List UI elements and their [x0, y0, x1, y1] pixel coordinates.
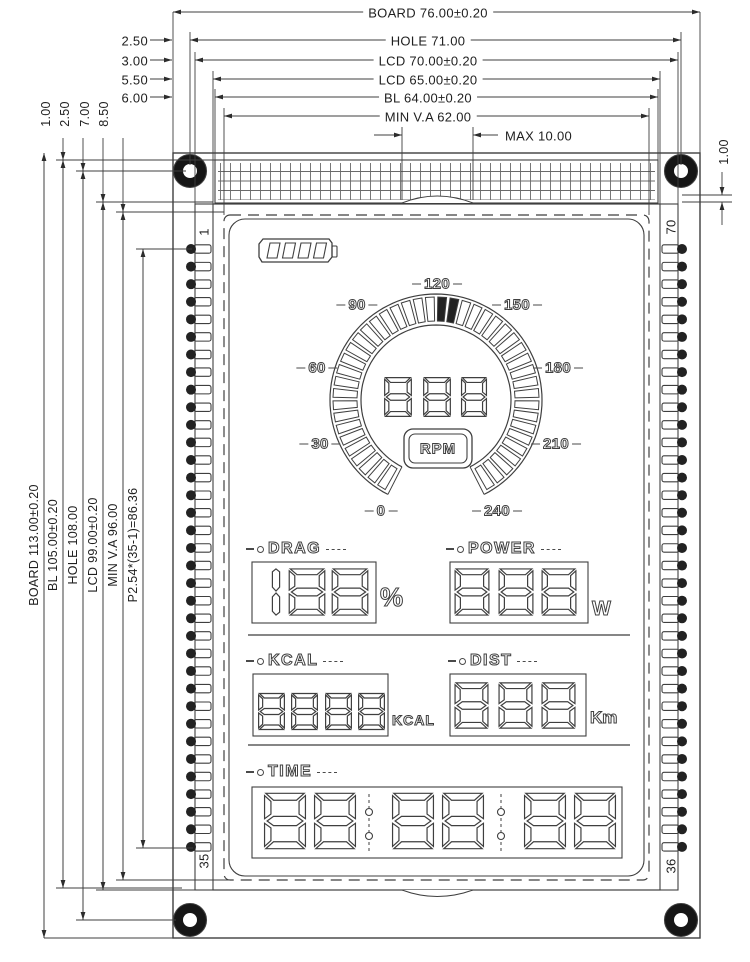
- kcal-section-label: KCAL: [246, 652, 343, 670]
- leader-dot-icon: [257, 658, 264, 665]
- gauge-digits: [385, 378, 487, 417]
- time-section-label: TIME: [246, 763, 337, 781]
- offset-top-hole: 2.50: [59, 101, 72, 127]
- gauge-label-180: 180: [530, 361, 586, 376]
- drag-section-label: DRAG: [246, 540, 346, 558]
- leader-dot-icon: [257, 769, 264, 776]
- gauge-label-0: 0: [362, 504, 401, 519]
- dim-top-backlight: BL 64.00±0.20: [379, 92, 477, 105]
- gauge-label-60-text: 60: [308, 361, 325, 376]
- dim-top-lcd-inner: LCD 65.00±0.20: [374, 74, 483, 87]
- power-unit-watt: W: [592, 598, 611, 621]
- pin-number-1: 1: [198, 228, 211, 236]
- leader-tail: [317, 772, 337, 773]
- gauge-label-120-text: 120: [424, 277, 450, 292]
- leader-dot-icon: [459, 658, 466, 665]
- leader-line: [246, 548, 254, 550]
- gauge-label-120: 120: [409, 277, 465, 292]
- kcal-digits: [259, 694, 385, 730]
- gauge-label-90: 90: [333, 298, 380, 313]
- leader-dot-icon: [257, 546, 264, 553]
- leader-dot-icon: [457, 546, 464, 553]
- offset-left-lcd-inner: 5.50: [121, 74, 148, 87]
- offset-right-backlight: 1.00: [718, 139, 731, 165]
- leader-line: [246, 660, 254, 662]
- lcd-module-technical-drawing: BOARD 76.00±0.20 HOLE 71.00 LCD 70.00±0.…: [0, 0, 750, 962]
- power-label-text: POWER: [468, 540, 536, 558]
- pin-number-36: 36: [665, 858, 678, 873]
- leader-tail: [323, 661, 343, 662]
- leader-tail: [541, 549, 561, 550]
- dim-left-hole-span: HOLE 108.00: [67, 505, 80, 584]
- dim-left-viewing-area: MIN V.A 96.00: [107, 503, 120, 586]
- dim-top-lcd-outer: LCD 70.00±0.20: [374, 55, 483, 68]
- dim-left-pin-pitch: P2.54*(35-1)=86.36: [127, 488, 140, 603]
- gauge-label-0-text: 0: [377, 504, 386, 519]
- gauge-label-30: 30: [296, 437, 343, 452]
- offset-left-lcd-outer: 3.00: [121, 55, 148, 68]
- time-digits: [265, 793, 616, 848]
- gauge-label-150: 150: [489, 298, 545, 313]
- offset-left-hole: 2.50: [121, 35, 148, 48]
- gauge-label-240: 240: [469, 504, 525, 519]
- gauge-label-60: 60: [293, 361, 340, 376]
- leader-line: [448, 660, 456, 662]
- leader-line: [446, 548, 454, 550]
- drawing-geometry: [0, 0, 750, 962]
- time-label-text: TIME: [268, 763, 312, 781]
- dim-left-board-height: BOARD 113.00±0.20: [28, 484, 41, 606]
- dist-digits: [455, 683, 575, 728]
- lcd-segment-artwork: [248, 429, 630, 858]
- leader-tail: [517, 661, 537, 662]
- gauge-label-90-text: 90: [348, 298, 365, 313]
- battery-icon: [259, 239, 337, 262]
- dist-unit-km: Km: [590, 708, 617, 728]
- pin-number-70: 70: [665, 219, 678, 234]
- pin-number-35: 35: [198, 853, 211, 868]
- dim-top-board-width: BOARD 76.00±0.20: [363, 7, 493, 20]
- drag-label-text: DRAG: [268, 540, 321, 558]
- gauge-label-210-text: 210: [543, 437, 569, 452]
- offset-top-backlight: 1.00: [40, 101, 53, 127]
- drag-digits: [272, 569, 367, 615]
- kcal-unit: KCAL: [392, 712, 435, 728]
- power-section-label: POWER: [446, 540, 561, 558]
- leader-tail: [326, 549, 346, 550]
- leader-line: [246, 771, 254, 773]
- dim-top-max-tab: MAX 10.00: [500, 130, 577, 143]
- kcal-label-text: KCAL: [268, 652, 318, 670]
- gauge-label-240-text: 240: [484, 504, 510, 519]
- gauge-label-30-text: 30: [311, 437, 328, 452]
- dim-top-hole-span: HOLE 71.00: [386, 35, 471, 48]
- dist-label-text: DIST: [470, 652, 512, 670]
- dim-left-lcd-height: LCD 99.00±0.20: [87, 497, 100, 592]
- dim-top-viewing-area: MIN V.A 62.00: [380, 111, 477, 124]
- power-digits: [455, 569, 576, 615]
- gauge-label-180-text: 180: [545, 361, 571, 376]
- gauge-label-210: 210: [528, 437, 584, 452]
- offset-top-lcd: 7.00: [79, 101, 92, 127]
- offset-left-backlight: 6.00: [121, 92, 148, 105]
- gauge-unit-label: RPM: [420, 442, 456, 457]
- offset-top-viewing: 8.50: [98, 101, 111, 127]
- drag-unit-percent: %: [380, 582, 403, 613]
- backlight-band: [215, 160, 658, 203]
- gauge-label-150-text: 150: [504, 298, 530, 313]
- dist-section-label: DIST: [448, 652, 537, 670]
- dim-left-backlight: BL 105.00±0.20: [47, 499, 60, 591]
